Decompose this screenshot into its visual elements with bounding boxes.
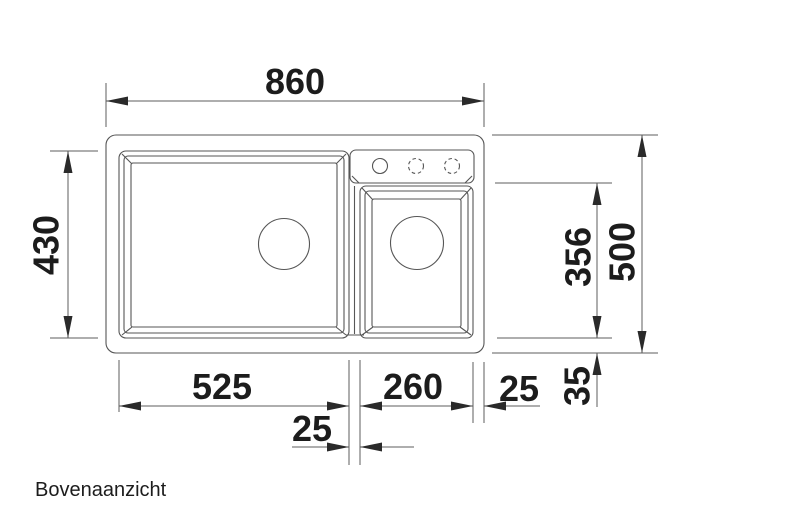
dim-main-bowl-depth-value: 430 (26, 215, 67, 275)
arrow-up-icon (638, 135, 647, 157)
dim-center-divider-value: 25 (292, 408, 332, 449)
dim-deck-to-bowl-bottom-value: 356 (558, 227, 599, 287)
dim-deck-to-bowl-bottom: 356 (495, 183, 612, 338)
main-bowl-rim-inner (131, 163, 337, 327)
small-bowl-rim-inner (372, 199, 461, 327)
sink-geometry (106, 135, 484, 353)
faucet-deck-outline (350, 150, 474, 183)
arrow-down-icon (638, 331, 647, 353)
main-bowl-rim-middle (124, 156, 344, 333)
main-bowl-corner-chamfers (122, 154, 346, 335)
sink-outline (106, 135, 484, 353)
arrow-down-icon (64, 316, 73, 338)
arrow-left-icon (360, 402, 382, 411)
faucet-deck-chamfers (352, 176, 472, 183)
sink-topview-technical-drawing: 860 430 500 356 (0, 0, 800, 519)
dim-overall-depth-value: 500 (602, 222, 643, 282)
drawing-page: 860 430 500 356 (0, 0, 800, 519)
small-bowl (360, 186, 473, 338)
arrow-left-icon (360, 443, 382, 452)
dim-right-edge-offset: 25 (484, 368, 540, 411)
arrow-up-icon (593, 183, 602, 205)
dim-overall-width-value: 860 (265, 61, 325, 102)
dim-bottom-edge-offset-value: 35 (557, 366, 598, 406)
dim-main-bowl-depth: 430 (26, 151, 98, 338)
dim-bottom-edge-offset: 35 (557, 353, 602, 407)
arrow-right-icon (451, 402, 473, 411)
arrow-down-icon (593, 316, 602, 338)
arrow-right-icon (462, 97, 484, 106)
small-bowl-rim-outer (360, 186, 473, 338)
faucet-hole-drilled-icon (373, 159, 388, 174)
small-bowl-corner-chamfers (362, 188, 471, 335)
drawing-caption: Bovenaanzicht (35, 479, 167, 501)
dim-small-bowl-width: 260 (360, 362, 484, 423)
arrow-up-icon (64, 151, 73, 173)
faucet-hole-optional-1-icon (409, 159, 424, 174)
arrow-left-icon (119, 402, 141, 411)
main-bowl-rim-outer (119, 151, 349, 338)
main-bowl (119, 151, 349, 338)
faucet-hole-optional-2-icon (445, 159, 460, 174)
dim-small-bowl-width-value: 260 (383, 366, 443, 407)
small-bowl-rim-middle (365, 191, 468, 333)
small-bowl-drain-icon (391, 217, 444, 270)
dim-right-edge-offset-value: 25 (499, 368, 539, 409)
dim-small-bowl-width-extension-lines (473, 362, 484, 423)
arrow-left-icon (106, 97, 128, 106)
dim-main-bowl-width-value: 525 (192, 366, 252, 407)
faucet-deck (350, 150, 474, 183)
main-bowl-drain-icon (259, 219, 310, 270)
dim-center-divider: 25 (292, 408, 414, 452)
dim-overall-width: 860 (106, 61, 484, 127)
